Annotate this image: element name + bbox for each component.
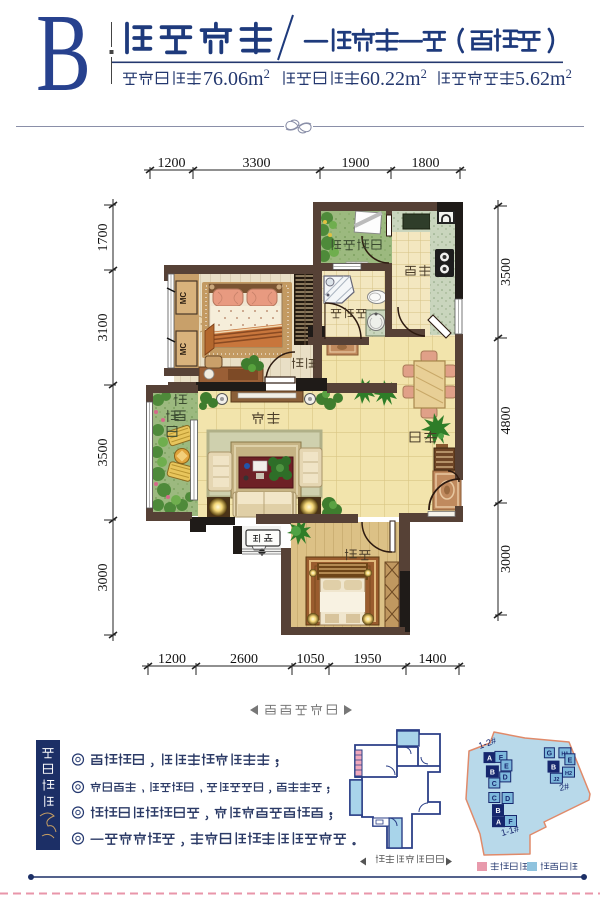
svg-text:3000: 3000 bbox=[96, 564, 111, 592]
svg-text:76.06m2: 76.06m2 bbox=[203, 67, 270, 90]
svg-text:3100: 3100 bbox=[96, 314, 111, 342]
svg-text:D: D bbox=[503, 775, 508, 782]
svg-text:3000: 3000 bbox=[499, 545, 514, 573]
svg-text:A: A bbox=[487, 755, 492, 762]
svg-text:B: B bbox=[490, 769, 495, 776]
svg-text:3500: 3500 bbox=[499, 258, 514, 286]
svg-text:MC: MC bbox=[179, 292, 188, 305]
svg-text:1700: 1700 bbox=[96, 224, 111, 252]
svg-text:1900: 1900 bbox=[342, 156, 370, 171]
svg-text:2#: 2# bbox=[558, 781, 570, 793]
svg-text:1200: 1200 bbox=[158, 652, 186, 667]
svg-text:1800: 1800 bbox=[412, 156, 440, 171]
svg-text:3500: 3500 bbox=[96, 439, 111, 467]
svg-text:MC: MC bbox=[179, 343, 188, 356]
svg-text:C: C bbox=[492, 781, 497, 788]
svg-text:1950: 1950 bbox=[354, 652, 382, 667]
svg-text:B: B bbox=[495, 808, 500, 815]
svg-text:J2: J2 bbox=[553, 777, 559, 783]
svg-text:3300: 3300 bbox=[243, 156, 271, 171]
svg-text:H2: H2 bbox=[565, 771, 572, 777]
svg-text:1400: 1400 bbox=[419, 652, 447, 667]
svg-text:4800: 4800 bbox=[499, 407, 514, 435]
svg-text:2600: 2600 bbox=[230, 652, 258, 667]
svg-text:5.62m2: 5.62m2 bbox=[515, 67, 572, 90]
svg-text:E: E bbox=[504, 763, 509, 770]
svg-text:1200: 1200 bbox=[158, 156, 186, 171]
svg-text:D: D bbox=[505, 796, 510, 803]
svg-text:1050: 1050 bbox=[297, 652, 325, 667]
svg-text:G: G bbox=[547, 751, 553, 758]
svg-text:B: B bbox=[36, 0, 91, 115]
svg-text:C: C bbox=[492, 795, 497, 802]
svg-text:60.22m2: 60.22m2 bbox=[360, 67, 427, 90]
svg-text:A: A bbox=[496, 820, 501, 827]
svg-text:E: E bbox=[568, 757, 573, 764]
svg-text:B: B bbox=[551, 765, 556, 772]
